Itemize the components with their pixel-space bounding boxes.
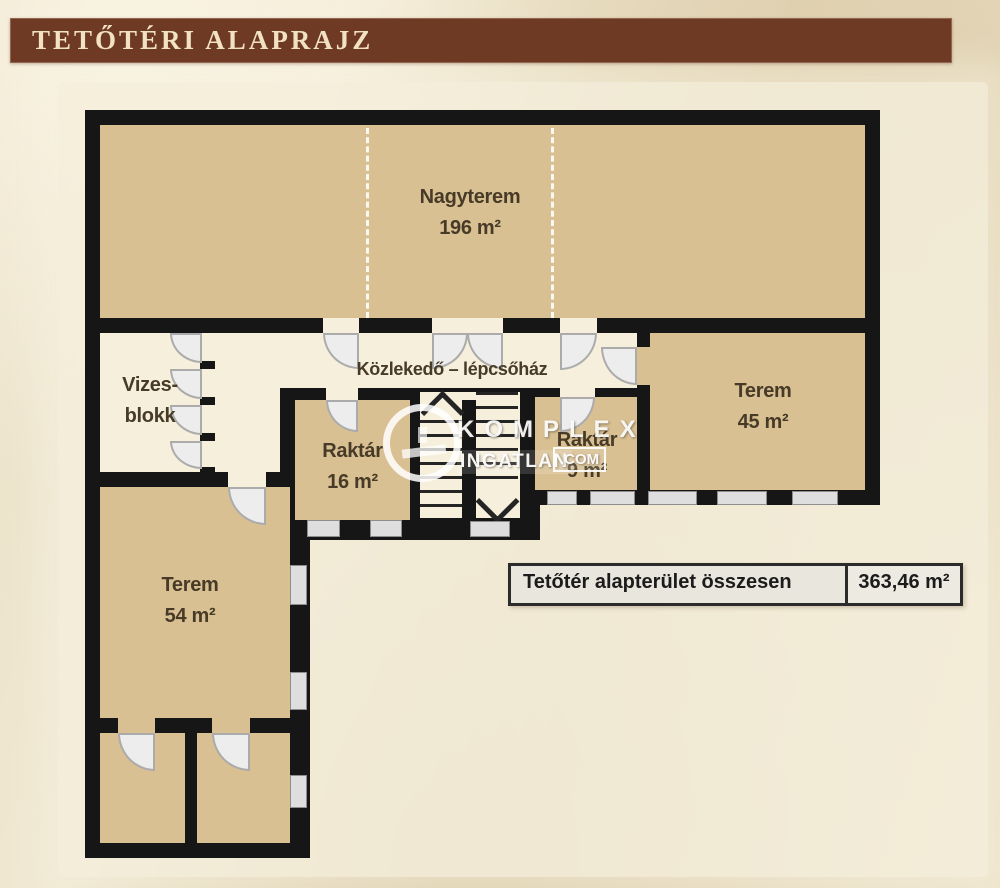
door-opening bbox=[118, 718, 155, 733]
dashed-partition-line bbox=[366, 128, 369, 318]
watermark-logo-icon bbox=[383, 404, 461, 482]
window bbox=[792, 491, 838, 505]
door-opening bbox=[200, 369, 215, 397]
window bbox=[370, 520, 402, 537]
door-opening bbox=[228, 472, 266, 487]
door-opening bbox=[212, 718, 250, 733]
window bbox=[290, 672, 307, 710]
room-label-vizesblokk: Vizes- blokk bbox=[100, 370, 200, 432]
watermark: KOMPLEX INGATLAN .COM bbox=[383, 400, 653, 490]
watermark-tld: .COM bbox=[553, 447, 606, 472]
corridor-vertical-floor bbox=[215, 333, 280, 472]
door-opening bbox=[200, 405, 215, 433]
window bbox=[290, 565, 307, 605]
total-area-value: 363,46 m² bbox=[845, 566, 960, 603]
door-opening bbox=[323, 318, 359, 333]
room-label-kozlekedo: Közlekedő – lépcsőház bbox=[287, 356, 617, 384]
watermark-brand: KOMPLEX bbox=[457, 416, 646, 444]
room-label-terem45: Terem 45 m² bbox=[668, 376, 858, 438]
door-opening bbox=[637, 347, 650, 385]
door-opening bbox=[560, 318, 597, 333]
window bbox=[547, 491, 577, 505]
door-opening bbox=[200, 333, 215, 361]
room-label-terem54: Terem 54 m² bbox=[100, 570, 280, 632]
window bbox=[307, 520, 340, 537]
room-label-nagyterem: Nagyterem 196 m² bbox=[370, 182, 570, 244]
window bbox=[717, 491, 767, 505]
door-opening bbox=[200, 441, 215, 467]
door-opening bbox=[326, 388, 358, 400]
total-area-label: Tetőtér alapterület összesen bbox=[511, 566, 845, 603]
window bbox=[648, 491, 697, 505]
window bbox=[470, 521, 510, 537]
window bbox=[590, 491, 635, 505]
total-area-box: Tetőtér alapterület összesen 363,46 m² bbox=[508, 563, 963, 606]
window bbox=[290, 775, 307, 808]
door-opening bbox=[432, 318, 503, 333]
door-opening bbox=[560, 388, 595, 397]
